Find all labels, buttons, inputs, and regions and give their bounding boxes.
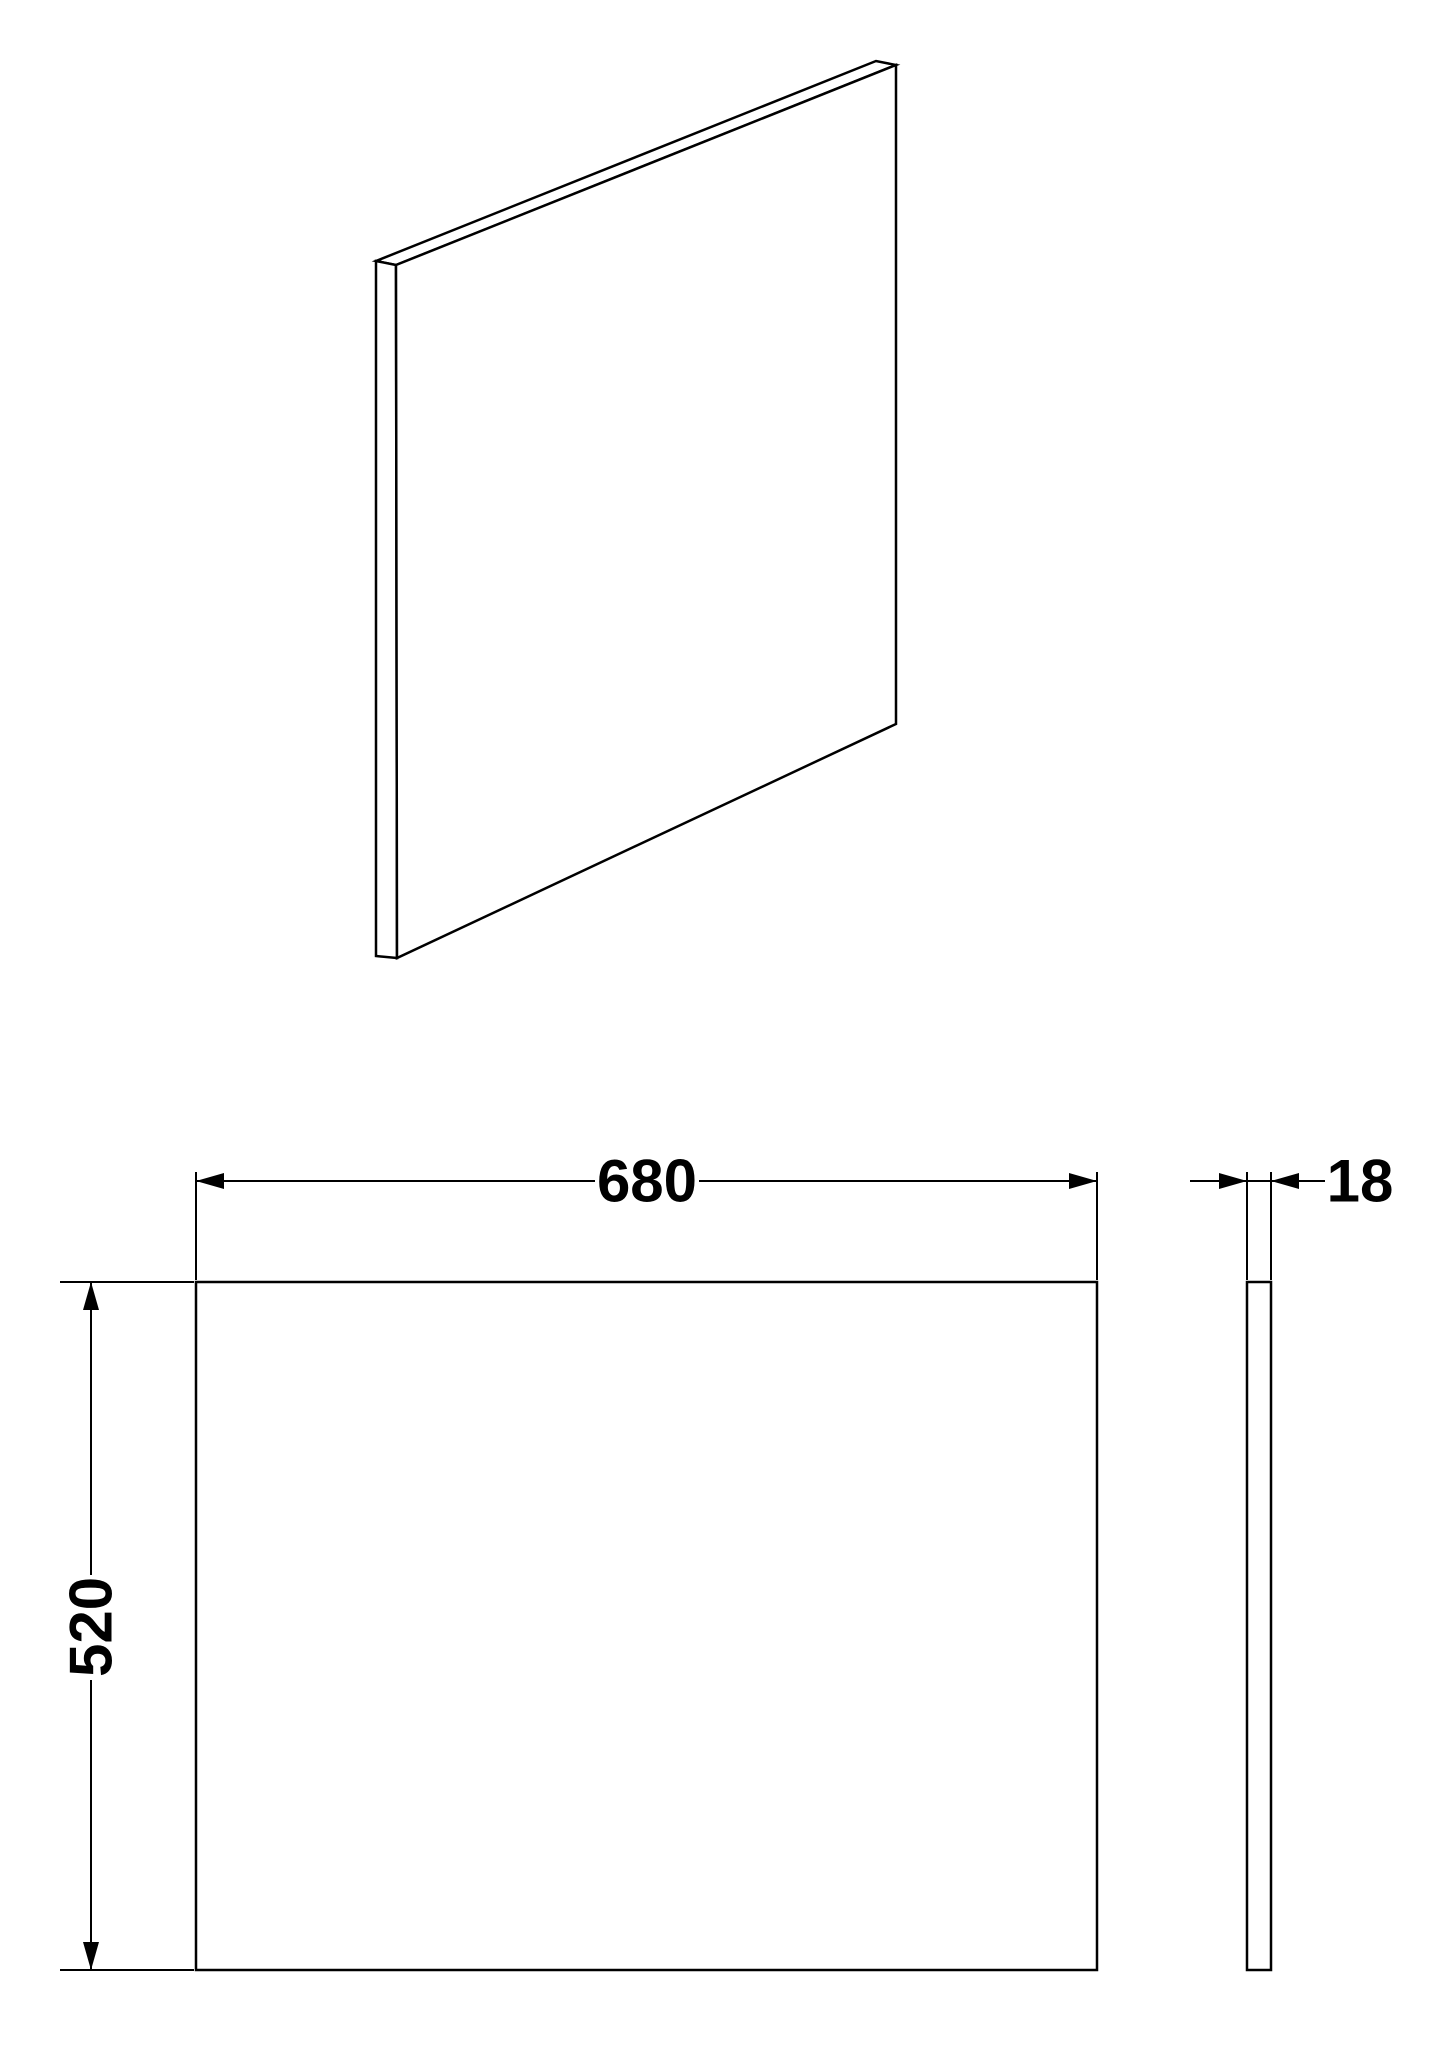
- thickness-arrowhead-left: [1219, 1173, 1247, 1189]
- height-dimension-label: 520: [58, 1577, 125, 1677]
- panel-left-edge-face: [376, 261, 397, 958]
- width-dimension-label: 680: [597, 1148, 697, 1215]
- panel-front-face: [396, 65, 896, 958]
- height-arrowhead-top: [83, 1282, 99, 1310]
- height-arrowhead-bottom: [83, 1942, 99, 1970]
- side-view-outline: [1247, 1282, 1271, 1970]
- dimension-thickness: 18: [1190, 1148, 1393, 1281]
- front-view: [196, 1282, 1097, 1970]
- dimension-width: 680: [196, 1148, 1097, 1281]
- technical-drawing-canvas: 680 520 18: [0, 0, 1445, 2045]
- dimension-height: 520: [58, 1282, 195, 1970]
- isometric-view: [376, 61, 896, 958]
- thickness-dimension-label: 18: [1327, 1148, 1394, 1215]
- drawing-sheet: 680 520 18: [0, 0, 1445, 2045]
- width-arrowhead-left: [196, 1173, 224, 1189]
- front-view-outline: [196, 1282, 1097, 1970]
- thickness-arrowhead-right: [1271, 1173, 1299, 1189]
- side-view: [1247, 1282, 1271, 1970]
- width-arrowhead-right: [1069, 1173, 1097, 1189]
